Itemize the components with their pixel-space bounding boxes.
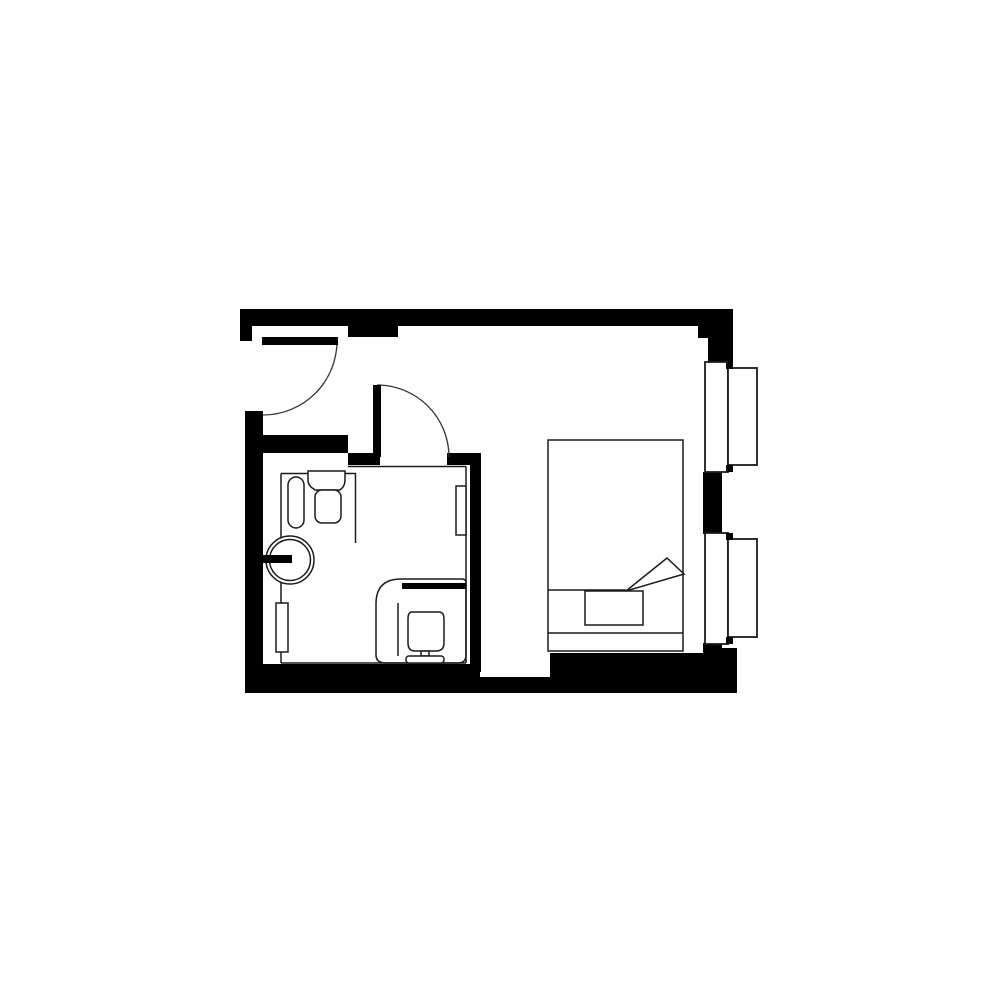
sink-bowl bbox=[315, 490, 341, 523]
top-left-wall-stub bbox=[240, 309, 252, 341]
bottom-wall-nook bbox=[480, 677, 550, 693]
bathroom-top-wall bbox=[263, 435, 348, 453]
window2-mullion-top bbox=[726, 533, 733, 540]
right-wall-mid-segment bbox=[703, 472, 722, 534]
toilet-bowl bbox=[408, 612, 444, 651]
entry-door-leaf bbox=[262, 337, 338, 345]
toilet-shelf bbox=[402, 583, 466, 589]
left-wall bbox=[245, 411, 263, 693]
bathroom-door-leaf bbox=[373, 385, 381, 457]
window1-mullion-bottom bbox=[726, 465, 733, 472]
window2-outer-sash bbox=[728, 539, 757, 637]
entry-door-swing-arc bbox=[263, 341, 337, 415]
window1-outer-sash bbox=[728, 368, 757, 465]
window1-mullion-top bbox=[726, 362, 733, 369]
washbasin-tap bbox=[262, 555, 292, 563]
window2-inner-sash bbox=[705, 533, 728, 644]
top-wall-pier bbox=[348, 326, 398, 337]
window1-inner-sash bbox=[705, 362, 728, 472]
toilet-cistern bbox=[406, 656, 444, 663]
top-wall bbox=[240, 309, 733, 326]
sink-backsplash bbox=[308, 471, 345, 490]
top-right-wall-step bbox=[698, 326, 733, 338]
bed-pillow bbox=[585, 591, 643, 625]
towel-radiator bbox=[288, 477, 304, 528]
wall-panel-right bbox=[456, 486, 466, 535]
window2-mullion-bottom bbox=[726, 637, 733, 644]
bathroom-door-swing-arc bbox=[377, 385, 449, 457]
floor-plan-drawing bbox=[0, 0, 1000, 1000]
bottom-wall-bathroom bbox=[258, 664, 480, 693]
floor-plan-page bbox=[0, 0, 1000, 1000]
wall-panel-left bbox=[276, 603, 288, 652]
top-right-wall-column bbox=[708, 338, 733, 362]
bathroom-right-wall bbox=[470, 453, 481, 672]
